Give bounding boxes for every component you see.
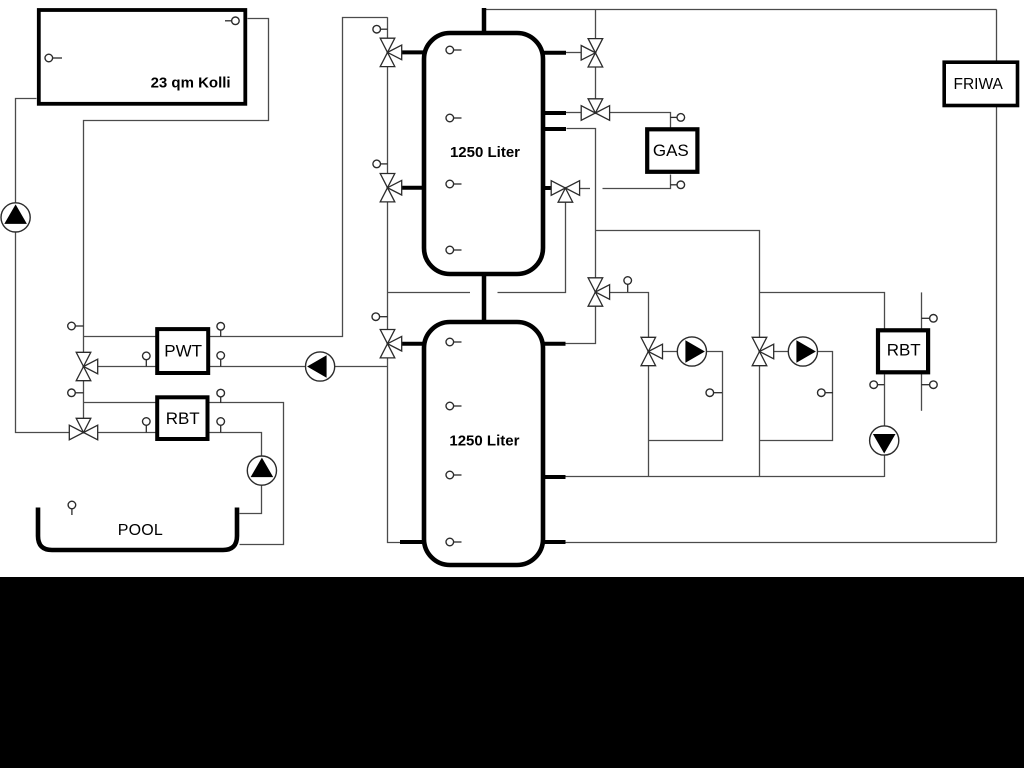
svg-text:FRIWA: FRIWA <box>954 76 1004 93</box>
svg-text:1250 Liter: 1250 Liter <box>450 144 520 161</box>
svg-text:POOL: POOL <box>118 522 163 539</box>
svg-text:PWT: PWT <box>164 341 202 360</box>
svg-text:RBT: RBT <box>887 341 921 360</box>
svg-text:1250 Liter: 1250 Liter <box>449 433 519 450</box>
svg-text:RBT: RBT <box>166 409 200 428</box>
svg-text:23 qm Kolli: 23 qm Kolli <box>151 75 231 92</box>
svg-text:GAS: GAS <box>653 141 689 160</box>
